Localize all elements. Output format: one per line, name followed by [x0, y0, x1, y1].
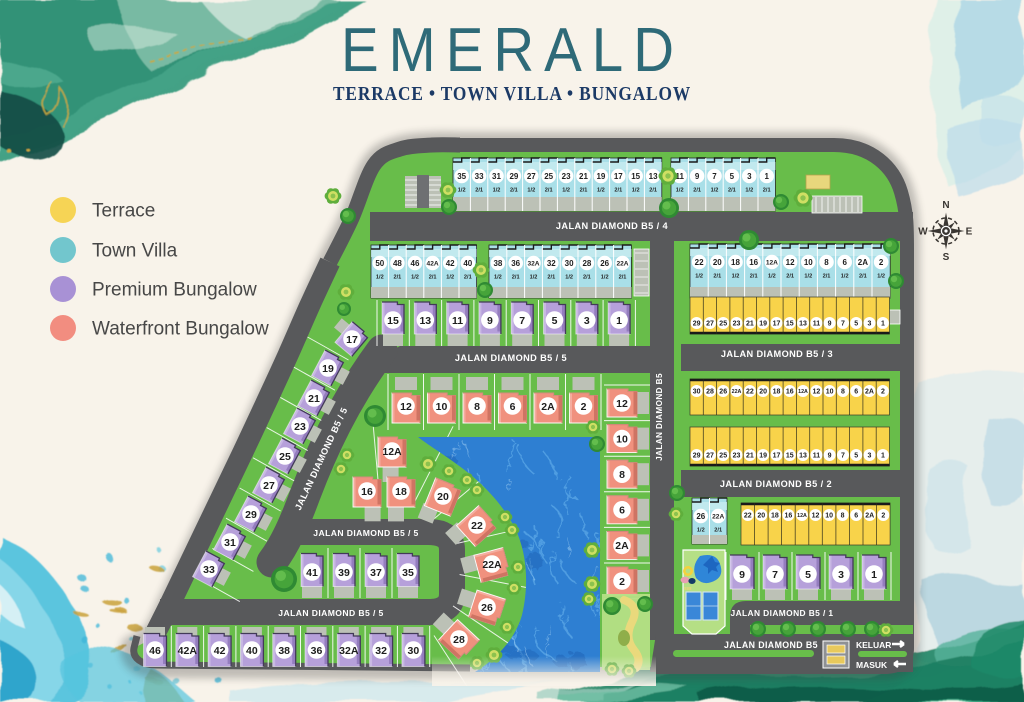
- svg-text:8: 8: [841, 513, 845, 520]
- svg-text:42A: 42A: [427, 260, 439, 267]
- svg-text:JALAN DIAMOND B5 / 4: JALAN DIAMOND B5 / 4: [556, 221, 669, 231]
- svg-text:19: 19: [759, 321, 767, 328]
- svg-text:2/1: 2/1: [512, 275, 520, 281]
- svg-text:8: 8: [841, 389, 845, 396]
- svg-text:1/2: 1/2: [458, 188, 466, 194]
- svg-text:33: 33: [203, 564, 215, 576]
- svg-text:3: 3: [747, 172, 752, 181]
- svg-text:35: 35: [457, 172, 466, 181]
- svg-text:8: 8: [474, 401, 480, 413]
- svg-text:Terrace: Terrace: [92, 201, 155, 222]
- svg-text:EMERALD: EMERALD: [341, 16, 684, 85]
- svg-text:5: 5: [805, 569, 811, 581]
- svg-text:27: 27: [263, 480, 275, 492]
- svg-text:5: 5: [854, 321, 858, 328]
- svg-text:38: 38: [278, 645, 290, 657]
- svg-text:2/1: 2/1: [394, 275, 402, 281]
- svg-text:15: 15: [387, 315, 399, 327]
- svg-text:1: 1: [881, 453, 885, 460]
- svg-text:18: 18: [771, 513, 779, 520]
- svg-text:2: 2: [619, 576, 625, 588]
- svg-text:3: 3: [868, 321, 872, 328]
- svg-text:12: 12: [812, 513, 820, 520]
- svg-text:20: 20: [437, 491, 449, 503]
- svg-text:1/2: 1/2: [527, 188, 535, 194]
- svg-text:7: 7: [519, 315, 525, 327]
- svg-text:30: 30: [565, 259, 574, 268]
- svg-text:17: 17: [773, 453, 781, 460]
- svg-text:21: 21: [579, 172, 588, 181]
- svg-text:41: 41: [306, 567, 318, 579]
- svg-text:23: 23: [294, 421, 306, 433]
- svg-text:11: 11: [452, 315, 463, 327]
- svg-text:2/1: 2/1: [510, 188, 518, 194]
- svg-text:31: 31: [224, 537, 236, 549]
- svg-text:26: 26: [719, 389, 727, 396]
- svg-text:3: 3: [868, 453, 872, 460]
- svg-text:1/2: 1/2: [411, 275, 419, 281]
- svg-text:2/1: 2/1: [713, 274, 721, 280]
- svg-text:32: 32: [375, 645, 387, 657]
- svg-text:2/1: 2/1: [583, 275, 591, 281]
- svg-text:1/2: 1/2: [494, 275, 502, 281]
- svg-text:46: 46: [149, 645, 161, 657]
- svg-text:29: 29: [245, 509, 257, 521]
- svg-text:23: 23: [733, 453, 741, 460]
- svg-text:13: 13: [649, 172, 658, 181]
- svg-text:26: 26: [600, 259, 609, 268]
- svg-text:MASUK: MASUK: [856, 660, 888, 670]
- svg-text:2A: 2A: [615, 540, 629, 552]
- svg-text:11: 11: [813, 453, 821, 460]
- svg-text:2/1: 2/1: [728, 188, 736, 194]
- svg-text:1/2: 1/2: [697, 528, 705, 534]
- svg-text:26: 26: [696, 512, 705, 521]
- svg-text:22: 22: [695, 258, 704, 267]
- svg-text:JALAN DIAMOND B5 / 1: JALAN DIAMOND B5 / 1: [731, 608, 834, 618]
- svg-text:12A: 12A: [797, 513, 807, 519]
- svg-text:2/1: 2/1: [464, 275, 472, 281]
- svg-text:17: 17: [614, 172, 623, 181]
- svg-text:15: 15: [631, 172, 640, 181]
- svg-text:1/2: 1/2: [711, 188, 719, 194]
- svg-text:JALAN DIAMOND B5: JALAN DIAMOND B5: [724, 640, 818, 650]
- svg-text:17: 17: [346, 334, 358, 346]
- svg-text:2/1: 2/1: [545, 188, 553, 194]
- svg-text:6: 6: [854, 389, 858, 396]
- svg-text:2A: 2A: [865, 389, 874, 396]
- svg-text:1: 1: [764, 172, 769, 181]
- svg-text:20: 20: [757, 513, 765, 520]
- svg-text:JALAN DIAMOND B5 / 5: JALAN DIAMOND B5 / 5: [455, 353, 567, 363]
- svg-text:30: 30: [408, 645, 420, 657]
- svg-text:1: 1: [871, 569, 877, 581]
- svg-text:32A: 32A: [339, 645, 359, 657]
- svg-text:28: 28: [453, 634, 465, 646]
- svg-text:2/1: 2/1: [763, 188, 771, 194]
- svg-text:22A: 22A: [616, 260, 628, 267]
- svg-text:30: 30: [693, 389, 701, 396]
- svg-text:1/2: 1/2: [841, 274, 849, 280]
- svg-text:16: 16: [786, 389, 794, 396]
- svg-text:Premium Bungalow: Premium Bungalow: [92, 280, 257, 301]
- svg-text:1: 1: [881, 321, 885, 328]
- svg-text:10: 10: [616, 433, 628, 445]
- svg-text:9: 9: [487, 315, 493, 327]
- svg-text:10: 10: [825, 513, 833, 520]
- svg-text:19: 19: [759, 453, 767, 460]
- svg-text:23: 23: [562, 172, 571, 181]
- svg-text:3: 3: [584, 315, 590, 327]
- svg-text:1/2: 1/2: [877, 274, 885, 280]
- svg-text:2A: 2A: [858, 258, 868, 267]
- svg-text:1/2: 1/2: [601, 275, 609, 281]
- svg-text:42A: 42A: [178, 645, 198, 657]
- svg-text:2/1: 2/1: [714, 528, 722, 534]
- svg-text:2/1: 2/1: [614, 188, 622, 194]
- svg-text:11: 11: [813, 321, 821, 328]
- svg-text:21: 21: [308, 393, 320, 405]
- svg-text:20: 20: [713, 258, 722, 267]
- svg-text:2/1: 2/1: [475, 188, 483, 194]
- svg-text:15: 15: [786, 453, 794, 460]
- svg-text:12: 12: [616, 398, 628, 410]
- svg-text:26: 26: [481, 602, 493, 614]
- svg-text:1/2: 1/2: [732, 274, 740, 280]
- svg-text:Waterfront Bungalow: Waterfront Bungalow: [92, 319, 269, 340]
- svg-text:22A: 22A: [482, 559, 502, 571]
- svg-text:1/2: 1/2: [768, 274, 776, 280]
- svg-text:32: 32: [547, 259, 556, 268]
- svg-text:18: 18: [773, 389, 781, 396]
- svg-text:39: 39: [338, 567, 350, 579]
- svg-text:35: 35: [402, 567, 414, 579]
- svg-text:12: 12: [400, 401, 412, 413]
- svg-text:12: 12: [813, 389, 821, 396]
- svg-text:1/2: 1/2: [562, 188, 570, 194]
- svg-text:7: 7: [841, 453, 845, 460]
- svg-text:7: 7: [712, 172, 717, 181]
- svg-text:10: 10: [436, 401, 448, 413]
- svg-text:JALAN DIAMOND B5 / 5: JALAN DIAMOND B5 / 5: [278, 608, 383, 618]
- svg-text:6: 6: [842, 258, 847, 267]
- svg-text:JALAN DIAMOND B5 / 3: JALAN DIAMOND B5 / 3: [721, 349, 833, 359]
- svg-text:6: 6: [619, 505, 625, 517]
- svg-text:31: 31: [492, 172, 501, 181]
- svg-text:2/1: 2/1: [786, 274, 794, 280]
- svg-text:29: 29: [693, 453, 701, 460]
- svg-text:1: 1: [616, 315, 622, 327]
- svg-text:6: 6: [854, 513, 858, 520]
- svg-text:27: 27: [706, 453, 714, 460]
- svg-text:19: 19: [596, 172, 605, 181]
- svg-text:9: 9: [828, 453, 832, 460]
- svg-text:25: 25: [719, 453, 727, 460]
- svg-text:1/2: 1/2: [446, 275, 454, 281]
- svg-text:28: 28: [706, 389, 714, 396]
- svg-text:2/1: 2/1: [580, 188, 588, 194]
- svg-text:42: 42: [214, 645, 226, 657]
- svg-text:JALAN DIAMOND B5 / 5: JALAN DIAMOND B5 / 5: [313, 528, 418, 538]
- svg-text:888: 888: [684, 586, 692, 591]
- svg-text:7: 7: [841, 321, 845, 328]
- svg-text:15: 15: [786, 321, 794, 328]
- svg-text:2/1: 2/1: [619, 275, 627, 281]
- svg-text:40: 40: [246, 645, 258, 657]
- svg-text:18: 18: [731, 258, 740, 267]
- svg-text:2A: 2A: [541, 401, 555, 413]
- svg-text:13: 13: [799, 453, 807, 460]
- svg-text:1/2: 1/2: [530, 275, 538, 281]
- svg-text:5: 5: [854, 453, 858, 460]
- svg-text:22: 22: [471, 520, 483, 532]
- svg-text:32A: 32A: [527, 260, 539, 267]
- svg-text:5: 5: [730, 172, 735, 181]
- svg-text:1/2: 1/2: [745, 188, 753, 194]
- svg-text:42: 42: [446, 259, 455, 268]
- svg-text:1/2: 1/2: [376, 275, 384, 281]
- svg-text:3: 3: [838, 569, 844, 581]
- svg-text:12A: 12A: [382, 446, 402, 458]
- svg-text:21: 21: [746, 453, 754, 460]
- svg-text:1/2: 1/2: [632, 188, 640, 194]
- svg-text:12: 12: [786, 258, 795, 267]
- svg-text:9: 9: [828, 321, 832, 328]
- svg-text:2/1: 2/1: [859, 274, 867, 280]
- svg-text:36: 36: [511, 259, 520, 268]
- svg-text:20: 20: [759, 389, 767, 396]
- svg-text:19: 19: [322, 363, 334, 375]
- svg-text:22A: 22A: [732, 389, 742, 395]
- svg-text:2/1: 2/1: [693, 188, 701, 194]
- svg-text:22: 22: [746, 389, 754, 396]
- svg-text:Town Villa: Town Villa: [92, 241, 178, 262]
- svg-text:13: 13: [799, 321, 807, 328]
- svg-text:1/2: 1/2: [597, 188, 605, 194]
- svg-text:KELUAR: KELUAR: [856, 640, 891, 650]
- svg-text:E: E: [966, 227, 973, 238]
- svg-text:2: 2: [879, 258, 884, 267]
- svg-text:21: 21: [746, 321, 754, 328]
- svg-text:33: 33: [475, 172, 484, 181]
- svg-text:2/1: 2/1: [429, 275, 437, 281]
- svg-text:N: N: [942, 200, 949, 211]
- svg-text:22A: 22A: [712, 513, 724, 520]
- svg-text:48: 48: [393, 259, 402, 268]
- svg-text:6: 6: [510, 401, 516, 413]
- svg-text:29: 29: [509, 172, 518, 181]
- svg-text:22: 22: [744, 513, 752, 520]
- svg-text:46: 46: [411, 259, 420, 268]
- svg-text:1/2: 1/2: [804, 274, 812, 280]
- svg-text:28: 28: [582, 259, 591, 268]
- svg-text:8: 8: [824, 258, 829, 267]
- svg-text:12A: 12A: [766, 259, 778, 266]
- svg-text:16: 16: [361, 486, 373, 498]
- svg-text:JALAN DIAMOND B5 / 2: JALAN DIAMOND B5 / 2: [720, 479, 832, 489]
- svg-text:36: 36: [311, 645, 323, 657]
- svg-text:S: S: [943, 252, 950, 263]
- svg-text:18: 18: [395, 486, 407, 498]
- svg-text:JALAN DIAMOND B5: JALAN DIAMOND B5: [655, 373, 664, 461]
- svg-text:7: 7: [772, 569, 778, 581]
- svg-text:2: 2: [881, 513, 885, 520]
- svg-text:1/2: 1/2: [493, 188, 501, 194]
- svg-text:23: 23: [733, 321, 741, 328]
- svg-text:38: 38: [493, 259, 502, 268]
- svg-text:50: 50: [375, 259, 384, 268]
- svg-text:5: 5: [552, 315, 558, 327]
- svg-text:37: 37: [370, 567, 382, 579]
- svg-text:10: 10: [826, 389, 834, 396]
- svg-text:1/2: 1/2: [695, 274, 703, 280]
- svg-text:12A: 12A: [798, 389, 808, 395]
- svg-text:W: W: [918, 227, 928, 238]
- svg-text:27: 27: [706, 321, 714, 328]
- svg-text:16: 16: [749, 258, 758, 267]
- svg-text:9: 9: [695, 172, 700, 181]
- svg-text:2: 2: [581, 401, 587, 413]
- svg-text:2/1: 2/1: [649, 188, 657, 194]
- svg-text:17: 17: [773, 321, 781, 328]
- svg-text:2: 2: [881, 389, 885, 396]
- svg-text:27: 27: [527, 172, 536, 181]
- svg-text:2/1: 2/1: [823, 274, 831, 280]
- svg-text:8: 8: [619, 469, 625, 481]
- svg-text:TERRACE • TOWN VILLA • BUNGALO: TERRACE • TOWN VILLA • BUNGALOW: [333, 83, 691, 105]
- svg-text:1/2: 1/2: [676, 188, 684, 194]
- svg-text:13: 13: [419, 315, 431, 327]
- svg-text:25: 25: [719, 321, 727, 328]
- svg-text:29: 29: [693, 321, 701, 328]
- svg-text:1/2: 1/2: [565, 275, 573, 281]
- svg-text:10: 10: [804, 258, 813, 267]
- svg-text:25: 25: [279, 451, 291, 463]
- svg-text:16: 16: [785, 513, 793, 520]
- svg-text:40: 40: [463, 259, 472, 268]
- svg-text:2/1: 2/1: [547, 275, 555, 281]
- svg-text:2/1: 2/1: [750, 274, 758, 280]
- svg-text:25: 25: [544, 172, 553, 181]
- svg-text:2A: 2A: [865, 513, 874, 520]
- svg-text:9: 9: [739, 569, 745, 581]
